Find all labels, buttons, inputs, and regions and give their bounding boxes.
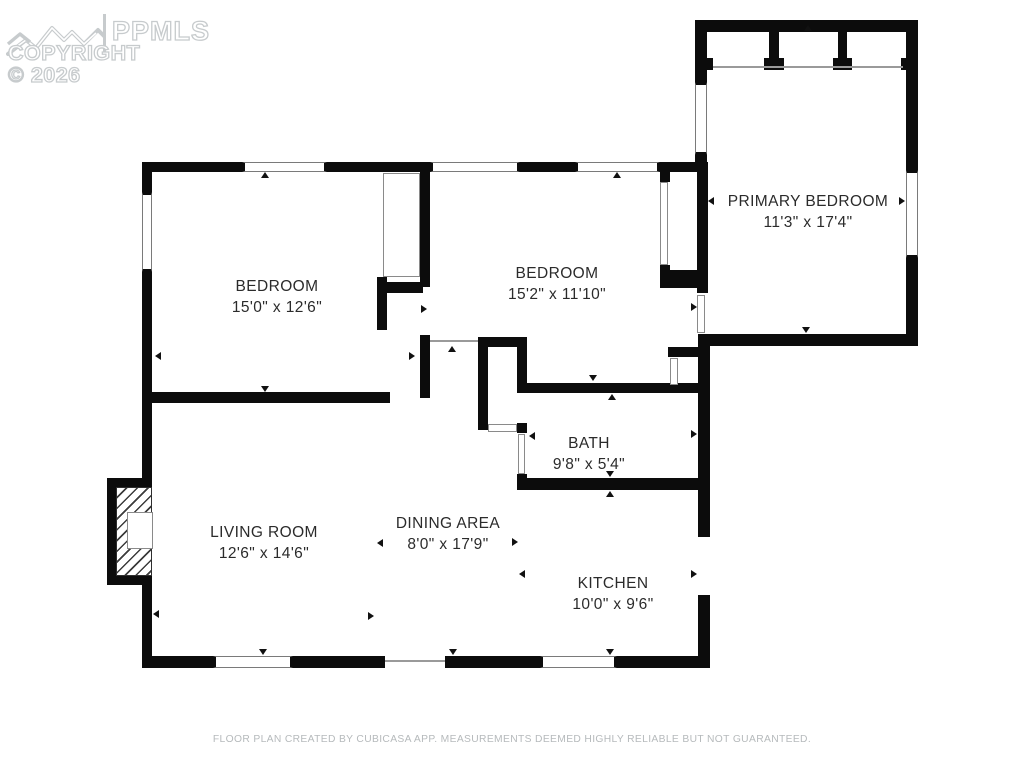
mls-logo: PPMLS COPYRIGHT © 2026 — [6, 6, 106, 63]
closet-door-leaf — [670, 358, 678, 385]
fireplace-wall — [107, 576, 145, 585]
room-dims: 8'0" x 17'9" — [396, 534, 500, 555]
measurement-tick — [691, 303, 697, 311]
room-dims: 15'2" x 11'10" — [508, 284, 606, 305]
measurement-tick — [691, 570, 697, 578]
measurement-tick — [409, 352, 415, 360]
room-label-living-room: LIVING ROOM 12'6" x 14'6" — [210, 522, 318, 564]
fireplace-wall — [107, 478, 116, 585]
opening-line — [430, 340, 478, 342]
room-name: DINING AREA — [396, 513, 500, 534]
door-leaf — [697, 295, 705, 333]
room-name: BATH — [553, 433, 625, 454]
closet-wall — [901, 58, 918, 70]
room-name: BEDROOM — [232, 276, 322, 297]
window — [695, 82, 707, 155]
fireplace-firebox — [127, 512, 153, 549]
room-label-bedroom-left: BEDROOM 15'0" x 12'6" — [232, 276, 322, 318]
wall-segment — [517, 423, 527, 433]
door-leaf — [518, 434, 525, 474]
room-label-primary-bedroom: PRIMARY BEDROOM 11'3" x 17'4" — [728, 191, 888, 233]
measurement-tick — [449, 649, 457, 655]
copyright-text: COPYRIGHT © 2026 — [8, 43, 140, 86]
window — [142, 192, 152, 272]
measurement-tick — [153, 610, 159, 618]
window — [906, 170, 918, 258]
closet-line — [713, 66, 903, 68]
room-dims: 15'0" x 12'6" — [232, 297, 322, 318]
measurement-tick — [261, 172, 269, 178]
measurement-tick — [613, 172, 621, 178]
room-dims: 10'0" x 9'6" — [572, 594, 653, 615]
window — [213, 656, 293, 668]
door-opening — [385, 656, 445, 668]
window — [242, 162, 327, 172]
measurement-tick — [899, 197, 905, 205]
room-label-bedroom-middle: BEDROOM 15'2" x 11'10" — [508, 263, 606, 305]
measurement-tick — [448, 346, 456, 352]
wall-segment — [478, 342, 488, 430]
window — [575, 162, 660, 172]
closet-wall — [764, 58, 784, 70]
floor-plan-page: PPMLS COPYRIGHT © 2026 — [0, 0, 1024, 767]
room-dims: 9'8" x 5'4" — [553, 454, 625, 475]
wall-segment — [660, 170, 670, 182]
wall-segment — [420, 335, 430, 398]
room-label-dining-area: DINING AREA 8'0" x 17'9" — [396, 513, 500, 555]
disclaimer-text: FLOOR PLAN CREATED BY CUBICASA APP. MEAS… — [0, 734, 1024, 745]
wall-segment — [517, 478, 710, 490]
measurement-tick — [606, 491, 614, 497]
room-name: LIVING ROOM — [210, 522, 318, 543]
measurement-tick — [606, 649, 614, 655]
door-opening — [698, 537, 710, 595]
wall-segment — [668, 347, 700, 357]
measurement-tick — [691, 430, 697, 438]
window — [430, 162, 520, 172]
room-name: KITCHEN — [572, 573, 653, 594]
measurement-tick — [529, 432, 535, 440]
wall-segment — [420, 162, 430, 287]
wall-segment — [698, 346, 710, 668]
wall-segment — [698, 334, 918, 346]
measurement-tick — [259, 649, 267, 655]
room-dims: 12'6" x 14'6" — [210, 543, 318, 564]
room-name: BEDROOM — [508, 263, 606, 284]
measurement-tick — [368, 612, 374, 620]
room-label-bath: BATH 9'8" x 5'4" — [553, 433, 625, 475]
measurement-tick — [708, 197, 714, 205]
wall-segment — [660, 270, 708, 288]
room-dims: 11'3" x 17'4" — [728, 212, 888, 233]
wall-segment — [377, 282, 423, 293]
closet-front — [383, 173, 420, 277]
measurement-tick — [804, 25, 812, 31]
threshold-line — [385, 660, 445, 662]
wall-segment — [142, 392, 390, 403]
room-label-kitchen: KITCHEN 10'0" x 9'6" — [572, 573, 653, 615]
closet-door-leaf — [488, 424, 517, 432]
measurement-tick — [261, 386, 269, 392]
measurement-tick — [802, 327, 810, 333]
measurement-tick — [589, 375, 597, 381]
measurement-tick — [519, 570, 525, 578]
closet-wall — [833, 58, 852, 70]
closet-door-leaf — [660, 182, 668, 265]
measurement-tick — [608, 394, 616, 400]
window — [540, 656, 617, 668]
closet-wall — [695, 58, 713, 70]
measurement-tick — [421, 305, 427, 313]
room-name: PRIMARY BEDROOM — [728, 191, 888, 212]
measurement-tick — [377, 539, 383, 547]
measurement-tick — [155, 352, 161, 360]
measurement-tick — [512, 538, 518, 546]
